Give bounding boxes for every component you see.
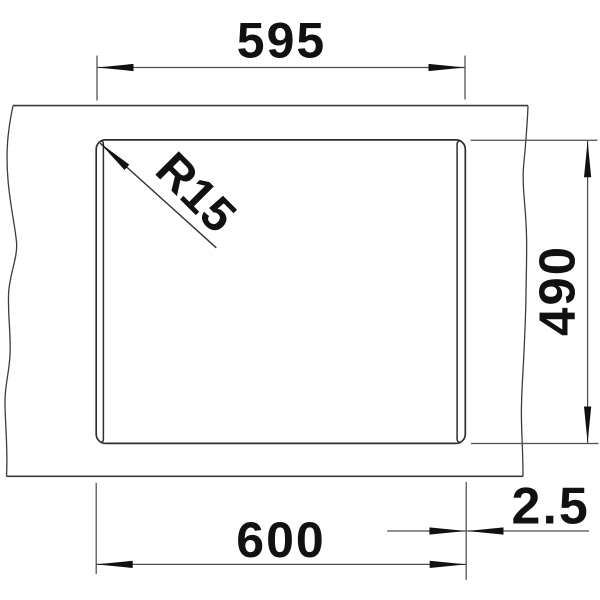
- svg-text:490: 490: [529, 245, 586, 336]
- svg-text:595: 595: [237, 12, 326, 68]
- svg-text:600: 600: [236, 512, 325, 568]
- svg-text:2.5: 2.5: [512, 477, 590, 535]
